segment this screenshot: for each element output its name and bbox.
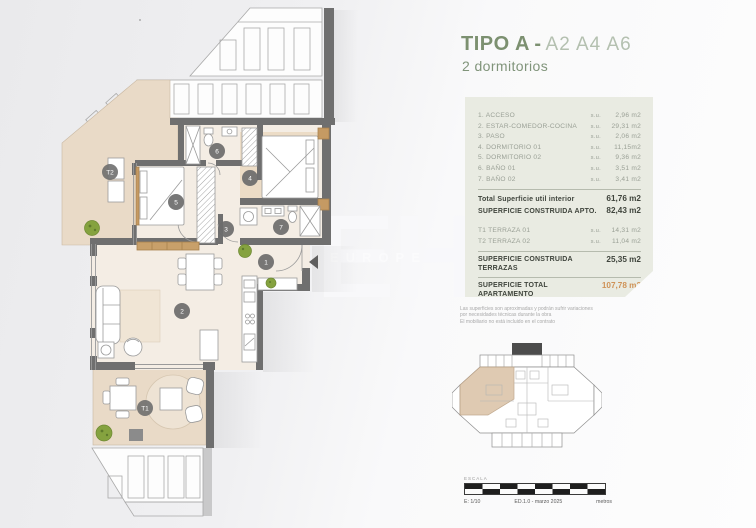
area-row: 2. ESTAR-COMEDOR-COCINAs.u.29,31 m2	[478, 122, 641, 133]
vanity-icon	[262, 206, 284, 216]
lounger-icon	[108, 181, 124, 202]
shower-icon	[300, 206, 320, 236]
room-marker: 7	[273, 219, 289, 235]
tree-icon	[239, 245, 252, 258]
key-plan	[452, 341, 602, 463]
scale-edition: ED.1.0 - marzo 2025	[514, 499, 562, 505]
svg-text:5: 5	[174, 199, 178, 206]
nightstand-icon	[318, 128, 329, 139]
page-subtitle: 2 dormitorios	[462, 58, 548, 74]
disclaimer: Las superficies son aproximadas y podrán…	[460, 306, 593, 325]
terraza-row: T2 TERRAZA 02s.u.11,04 m2	[478, 237, 641, 248]
kitchen-island-icon	[200, 330, 218, 360]
armchair-icon	[124, 338, 142, 356]
room-marker: 4	[242, 170, 258, 186]
area-row: 4. DORMITORIO 01s.u.11,15m2	[478, 143, 641, 154]
area-summary-panel: 1. ACCESOs.u.2,96 m2 2. ESTAR-COMEDOR-CO…	[465, 97, 653, 297]
hall-cabinet-icon	[258, 278, 297, 290]
page-title: TIPO A - A2 A4 A6	[461, 33, 632, 56]
construida-terrazas-block: SUPERFICIE CONSTRUIDA TERRAZAS 25,35 m2	[478, 255, 641, 273]
tree-icon	[266, 278, 276, 288]
area-row: 5. DORMITORIO 02s.u.9,36 m2	[478, 153, 641, 164]
tree-icon	[96, 425, 112, 441]
divider	[478, 251, 641, 252]
neighbor-terrace-outline-bottom	[92, 448, 212, 516]
area-row: 3. PASOs.u.2,06 m2	[478, 132, 641, 143]
scale-units: metros	[596, 499, 612, 505]
sofa-icon	[96, 286, 120, 344]
svg-text:T2: T2	[106, 169, 114, 176]
key-plan-core	[512, 343, 542, 355]
rug-icon	[120, 290, 160, 342]
scale-ratio: E: 1/10	[464, 499, 480, 505]
terrace-table-icon	[160, 388, 182, 410]
terraza-row: T1 TERRAZA 01s.u.14,31 m2	[478, 226, 641, 237]
svg-text:2: 2	[180, 308, 184, 315]
room-marker: T2	[102, 164, 118, 180]
terrace-chair-icon	[185, 405, 204, 424]
scale-title: ESCALA	[464, 476, 614, 481]
wardrobe-icon	[197, 167, 215, 243]
type-label: TIPO A	[461, 33, 530, 55]
kitchen-counter-icon	[242, 276, 257, 362]
room-marker: 2	[174, 303, 190, 319]
room-marker: 5	[168, 194, 184, 210]
svg-text:6: 6	[215, 148, 219, 155]
unit-codes: A2 A4 A6	[546, 34, 632, 55]
side-table-icon	[98, 342, 114, 358]
area-row: 1. ACCESOs.u.2,96 m2	[478, 111, 641, 122]
svg-text:1: 1	[264, 259, 268, 266]
total-apartamento-block: SUPERFICIE TOTAL APARTAMENTO 107,78 m2	[478, 281, 641, 299]
plan-reference-dot	[139, 19, 141, 21]
total-area-value: 107,78 m2	[602, 281, 641, 299]
sideboard-icon	[137, 242, 199, 250]
svg-text:T1: T1	[141, 405, 149, 412]
construida-apto-row: SUPERFICIE CONSTRUIDA APTO. 82,43 m2	[478, 205, 641, 217]
double-bed-icon	[262, 136, 318, 198]
shower-icon	[186, 126, 200, 164]
room-marker: 6	[209, 143, 225, 159]
svg-text:3: 3	[224, 226, 228, 233]
total-util-row: Total Superficie util interior 61,76 m2	[478, 193, 641, 205]
svg-text:7: 7	[279, 224, 283, 231]
room-marker: T1	[137, 400, 153, 416]
toilet-icon	[288, 206, 297, 223]
svg-text:4: 4	[248, 175, 252, 182]
area-row: 6. BAÑO 01s.u.3,51 m2	[478, 164, 641, 175]
room-marker: 3	[218, 221, 234, 237]
wardrobe-icon	[242, 128, 257, 166]
scale-bar-graphic	[464, 483, 606, 495]
divider	[478, 277, 641, 278]
divider	[478, 189, 641, 190]
planter-icon	[129, 429, 143, 441]
scale-bar: ESCALA E: 1/10 ED.1.0 - marzo 2025 metro…	[464, 476, 614, 505]
area-row: 7. BAÑO 02s.u.3,41 m2	[478, 175, 641, 186]
toilet-icon	[204, 128, 213, 146]
room-marker: 1	[258, 254, 274, 270]
washing-machine-icon	[240, 208, 257, 225]
floor-plan: 1 2 3 4 5 6 7 T1 T2	[0, 0, 445, 528]
tree-icon	[85, 221, 100, 236]
sink-icon	[222, 127, 237, 136]
